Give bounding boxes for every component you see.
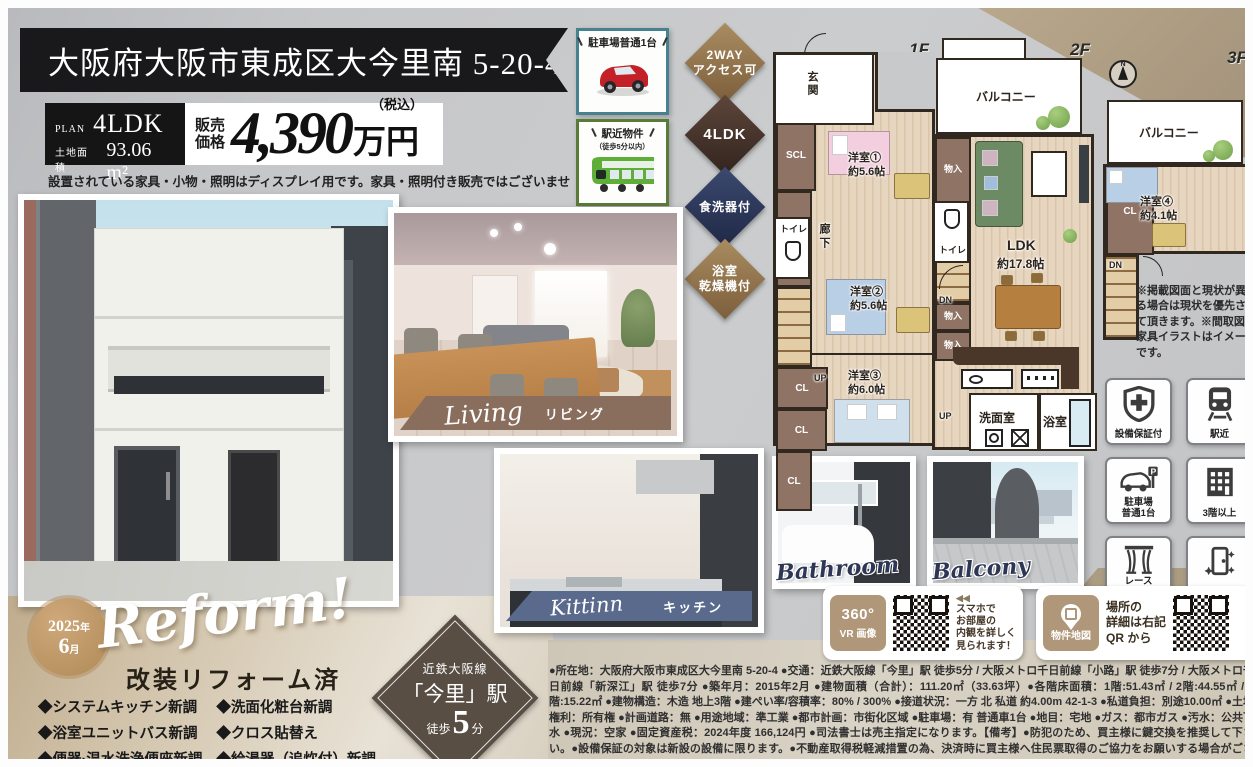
reform-item: ◆浴室ユニットバス新調: [38, 722, 202, 743]
floorplan-3f-building: 洋室④ 約4.1帖 CL: [1103, 164, 1253, 254]
feature-diamond-4ldk: 4LDK: [686, 96, 764, 174]
living-label-jp: リビング: [545, 404, 605, 423]
station-line: 近鉄大阪線: [422, 660, 487, 677]
kitchen-label-banner: Kittinn キッチン: [506, 591, 752, 621]
station-badge-subtitle: （徒歩5分以内）: [595, 142, 649, 152]
floorplan-2f-building: 物入 トイレ DN UP LDK 約17.8帖: [932, 134, 1094, 450]
feature-diamond-2way: 2WAYアクセス可: [686, 24, 764, 102]
station-badge-title: 駅近物件: [602, 126, 644, 141]
kitchen-label-en: Kittinn: [549, 591, 624, 620]
train-icon: [588, 154, 658, 194]
price-unit: 万円: [353, 115, 419, 163]
feature-icon-warranty: 設備保証付: [1105, 378, 1172, 445]
living-label-en: Living: [443, 396, 524, 430]
feature-icon-3floors: 3階以上: [1186, 457, 1253, 524]
vr-caption: ◀◀ スマホで お部屋の 内観を詳しく 見られます！: [956, 593, 1016, 653]
shield-cross-icon: [1122, 386, 1156, 422]
door-sparkle-icon: [1203, 544, 1237, 578]
vr-360-icon: 360° VR 画像: [830, 595, 886, 651]
vr-tour-card: 360° VR 画像 ◀◀ スマホで お部屋の 内観を詳しく 見られます！: [823, 586, 1023, 660]
reform-item-list: ◆システムキッチン新調 ◆浴室ユニットバス新調 ◆便器·温水洗浄便座新調 ◆洗面…: [38, 696, 376, 767]
balcony-3f: バルコニー: [1107, 100, 1243, 164]
vr-qr-code: [893, 595, 949, 651]
address-banner: 大阪府大阪市東成区大今里南 5-20-4: [20, 28, 568, 92]
map-card: 物件地図 場所の 詳細は右記 QR から: [1036, 586, 1253, 660]
price-value: 4,390: [231, 106, 351, 160]
car-icon: [592, 52, 654, 98]
building-icon: [1203, 465, 1237, 499]
kitchen-label-jp: キッチン: [663, 597, 723, 616]
parking-badge-title: 駐車場普通1台: [588, 35, 657, 50]
compass-icon: N: [1109, 60, 1137, 88]
map-pin-icon: [1061, 604, 1081, 624]
station-name: 「今里」駅: [403, 678, 508, 708]
floorplan-2f: 2F バルコニー 物入 トイレ DN UP: [930, 36, 1108, 454]
price-box: 販売 価格 4,390 万円 （税込）: [185, 103, 443, 165]
reform-title: 改装リフォーム済: [126, 660, 341, 695]
station-access-diamond: 近鉄大阪線 「今里」駅 徒歩 5 分: [396, 639, 514, 757]
reform-item: ◆洗面化粧台新調: [216, 696, 376, 717]
property-details-text: ●所在地：大阪府大阪市東成区大今里南 5-20-4 ●交通：近鉄大阪線「今里」駅…: [549, 664, 1253, 767]
reform-item: ◆給湯器（追炊付）新調: [216, 748, 376, 767]
parking-badge: 駐車場普通1台: [576, 28, 669, 115]
exterior-photo: [18, 194, 399, 607]
svg-text:P: P: [1150, 467, 1156, 477]
map-caption: 場所の 詳細は右記 QR から: [1106, 600, 1166, 647]
feature-icon-station: 駅近: [1186, 378, 1253, 445]
curtain-icon: [1122, 544, 1156, 576]
reform-item: ◆便器·温水洗浄便座新調: [38, 748, 202, 767]
land-area-label: 土地面積: [55, 144, 98, 174]
reform-item: ◆クロス貼替え: [216, 722, 376, 743]
plan-value: 4LDK: [93, 109, 163, 139]
living-label-banner: Living リビング: [400, 396, 671, 430]
car-p-icon: P: [1119, 465, 1159, 495]
property-address: 大阪府大阪市東成区大今里南 5-20-4: [48, 38, 561, 83]
map-qr-code: [1173, 595, 1229, 651]
tax-included-note: （税込）: [371, 94, 423, 113]
near-station-badge: 駅近物件 （徒歩5分以内）: [576, 119, 669, 206]
real-estate-flyer: 大阪府大阪市東成区大今里南 5-20-4 PLAN 4LDK 土地面積 93.0…: [0, 0, 1253, 767]
floorplan-1f-building: 下駄箱 玄関 SCL 洋室① 約5.6帖 CL トイレ 物入 UP 廊下 CL …: [773, 52, 935, 446]
kitchen-photo: Kittinn キッチン: [494, 448, 764, 633]
feature-icon-parking: P 駐車場普通1台: [1105, 457, 1172, 524]
arrows-icon: ◀◀: [956, 593, 1016, 604]
feature-diamond-bath-dryer: 浴室乾燥機付: [686, 240, 764, 318]
reform-item: ◆システムキッチン新調: [38, 696, 202, 717]
plan-info-box: PLAN 4LDK 土地面積 93.06 m²: [45, 103, 185, 165]
floorplan-1f: 1F 下駄箱 玄関 SCL 洋室① 約5.6帖 CL トイレ 物入 UP 廊下: [771, 36, 951, 450]
living-photo: Living リビング: [388, 207, 683, 442]
train-front-icon: [1203, 386, 1237, 422]
map-pin-badge: 物件地図: [1043, 595, 1099, 651]
plan-label: PLAN: [55, 124, 85, 135]
price-label: 販売 価格: [195, 117, 225, 152]
floorplan-note: ※掲載図面と現状が異なる場合は現状を優先させて頂きます。※間取図の家具イラストは…: [1136, 284, 1253, 361]
feature-diamond-dishwasher: 食洗器付: [686, 168, 764, 246]
house-facade: [94, 228, 344, 573]
balcony-2f: バルコニー: [936, 58, 1082, 134]
